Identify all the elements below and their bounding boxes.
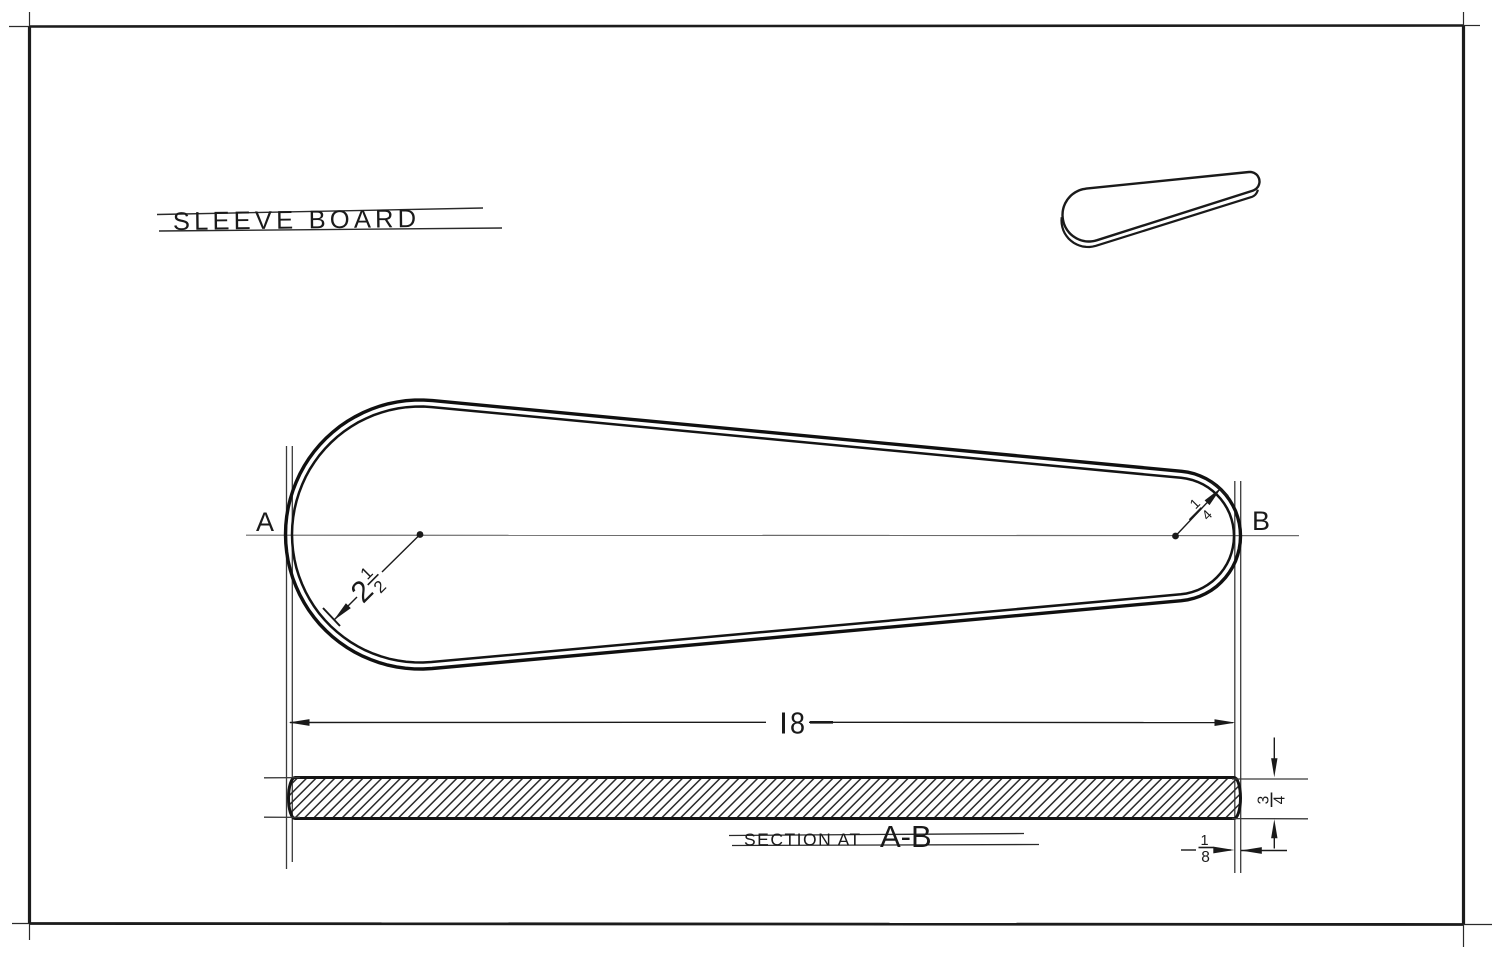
svg-text:3: 3 — [1256, 796, 1273, 805]
svg-text:A: A — [256, 507, 274, 537]
svg-text:1: 1 — [1200, 833, 1208, 849]
svg-text:SECTION AT: SECTION AT — [744, 830, 862, 850]
svg-text:B: B — [1252, 506, 1270, 536]
svg-text:4: 4 — [1272, 795, 1289, 804]
svg-text:8: 8 — [790, 707, 805, 741]
svg-text:A-B: A-B — [880, 819, 932, 854]
svg-text:SLEEVE BOARD: SLEEVE BOARD — [173, 205, 421, 236]
svg-text:8: 8 — [1201, 849, 1210, 866]
